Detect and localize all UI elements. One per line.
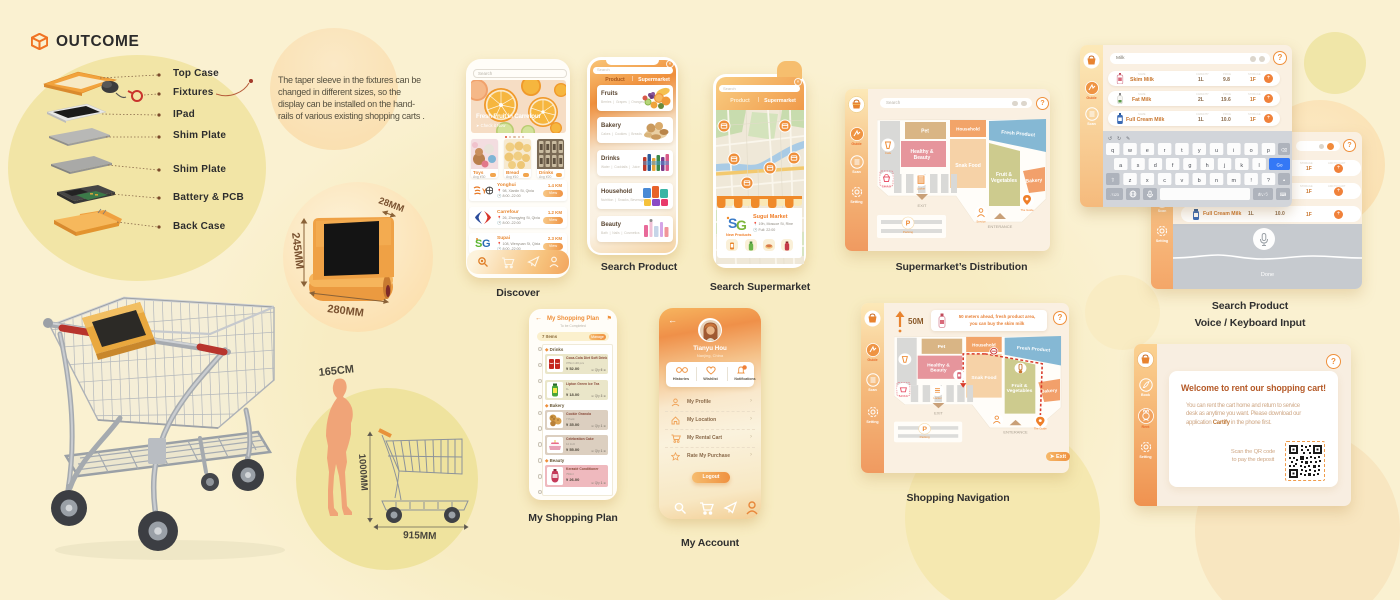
svg-text:v: v bbox=[1181, 178, 1184, 184]
svg-text:Bakery: Bakery bbox=[1025, 177, 1042, 184]
svg-text:g: g bbox=[1188, 163, 1191, 169]
svg-text:Fresh Fruit in Carrefour: Fresh Fruit in Carrefour bbox=[476, 113, 541, 120]
svg-text:245MM: 245MM bbox=[289, 232, 305, 270]
svg-text:⇧: ⇧ bbox=[1111, 178, 1115, 184]
svg-text:The Guide: The Guide bbox=[1020, 208, 1034, 212]
svg-text:p: p bbox=[1267, 148, 1270, 154]
svg-text:あいう: あいう bbox=[1258, 192, 1269, 197]
svg-text:▲: ▲ bbox=[1282, 178, 1285, 182]
svg-text:EXIT: EXIT bbox=[934, 412, 943, 416]
svg-text:Service: Service bbox=[882, 185, 892, 189]
svg-text:915MM: 915MM bbox=[403, 530, 437, 540]
svg-text:d: d bbox=[1154, 163, 1157, 169]
svg-text:P: P bbox=[906, 221, 911, 228]
svg-text:c: c bbox=[1163, 178, 1166, 184]
svg-text:h: h bbox=[1206, 163, 1209, 169]
svg-text:n: n bbox=[1215, 178, 1218, 184]
svg-text:Service: Service bbox=[899, 394, 909, 398]
svg-text:G: G bbox=[736, 217, 747, 232]
svg-text:k: k bbox=[1240, 163, 1243, 169]
svg-text:Household: Household bbox=[972, 342, 996, 347]
svg-text:⌫: ⌫ bbox=[1281, 148, 1288, 153]
svg-text:⌨: ⌨ bbox=[1280, 192, 1287, 197]
svg-text:Beauty: Beauty bbox=[930, 368, 947, 373]
svg-text:Fruit &: Fruit & bbox=[1012, 383, 1028, 388]
svg-text:↻: ↻ bbox=[1117, 136, 1121, 142]
svg-text:The Guide: The Guide bbox=[1034, 427, 1047, 431]
svg-text:Cafe: Cafe bbox=[885, 151, 892, 155]
svg-text:28MM: 28MM bbox=[377, 195, 406, 214]
svg-text:i: i bbox=[1233, 148, 1234, 154]
svg-text:Beauty: Beauty bbox=[914, 155, 931, 161]
svg-text:1000MM: 1000MM bbox=[356, 453, 370, 491]
svg-text:u: u bbox=[1215, 148, 1218, 154]
svg-text:l: l bbox=[1258, 163, 1259, 169]
svg-text:280MM: 280MM bbox=[327, 303, 365, 319]
svg-text:Pet: Pet bbox=[938, 344, 946, 349]
svg-text:EXIT: EXIT bbox=[918, 203, 927, 208]
svg-text:Vegetables: Vegetables bbox=[1007, 388, 1033, 393]
svg-text:Parking: Parking bbox=[903, 230, 914, 234]
svg-text:P: P bbox=[922, 426, 927, 433]
svg-text:165CM: 165CM bbox=[318, 363, 355, 379]
svg-text:Snak Food: Snak Food bbox=[955, 163, 981, 169]
svg-text:.?123: .?123 bbox=[1110, 193, 1119, 197]
svg-text:➤ Check it Now: ➤ Check it Now bbox=[476, 123, 506, 128]
svg-text:Healthy &: Healthy & bbox=[927, 363, 950, 368]
svg-text:ENTERANCE: ENTERANCE bbox=[1003, 430, 1028, 434]
svg-text:Vegetables: Vegetables bbox=[991, 178, 1017, 184]
svg-text:Pet: Pet bbox=[921, 129, 929, 135]
svg-text:j: j bbox=[1223, 163, 1225, 169]
svg-text:↺: ↺ bbox=[1108, 136, 1112, 142]
svg-text:Snak Food: Snak Food bbox=[971, 375, 996, 380]
svg-text:w: w bbox=[1127, 148, 1132, 154]
svg-text:o: o bbox=[1250, 148, 1253, 154]
svg-text:z: z bbox=[1129, 178, 1132, 184]
svg-text:y: y bbox=[1198, 148, 1201, 154]
svg-text:Household: Household bbox=[956, 127, 980, 132]
svg-text:Parking: Parking bbox=[920, 435, 930, 439]
svg-text:b: b bbox=[1198, 178, 1201, 184]
svg-text:e: e bbox=[1146, 148, 1149, 154]
svg-text:Go: Go bbox=[1276, 163, 1283, 168]
svg-text:G: G bbox=[482, 238, 491, 249]
svg-text:ENTERANCE: ENTERANCE bbox=[988, 224, 1013, 229]
svg-text:?: ? bbox=[1267, 178, 1270, 184]
svg-text:r: r bbox=[1164, 148, 1166, 154]
svg-text:x: x bbox=[1146, 178, 1149, 184]
svg-text:Locker: Locker bbox=[917, 187, 925, 191]
svg-text:✎: ✎ bbox=[1126, 136, 1130, 142]
svg-text:q: q bbox=[1111, 148, 1114, 154]
svg-text:s: s bbox=[1137, 163, 1140, 169]
svg-text:Service: Service bbox=[976, 220, 986, 224]
svg-text:Locker: Locker bbox=[933, 396, 941, 400]
svg-text:m: m bbox=[1232, 178, 1237, 184]
